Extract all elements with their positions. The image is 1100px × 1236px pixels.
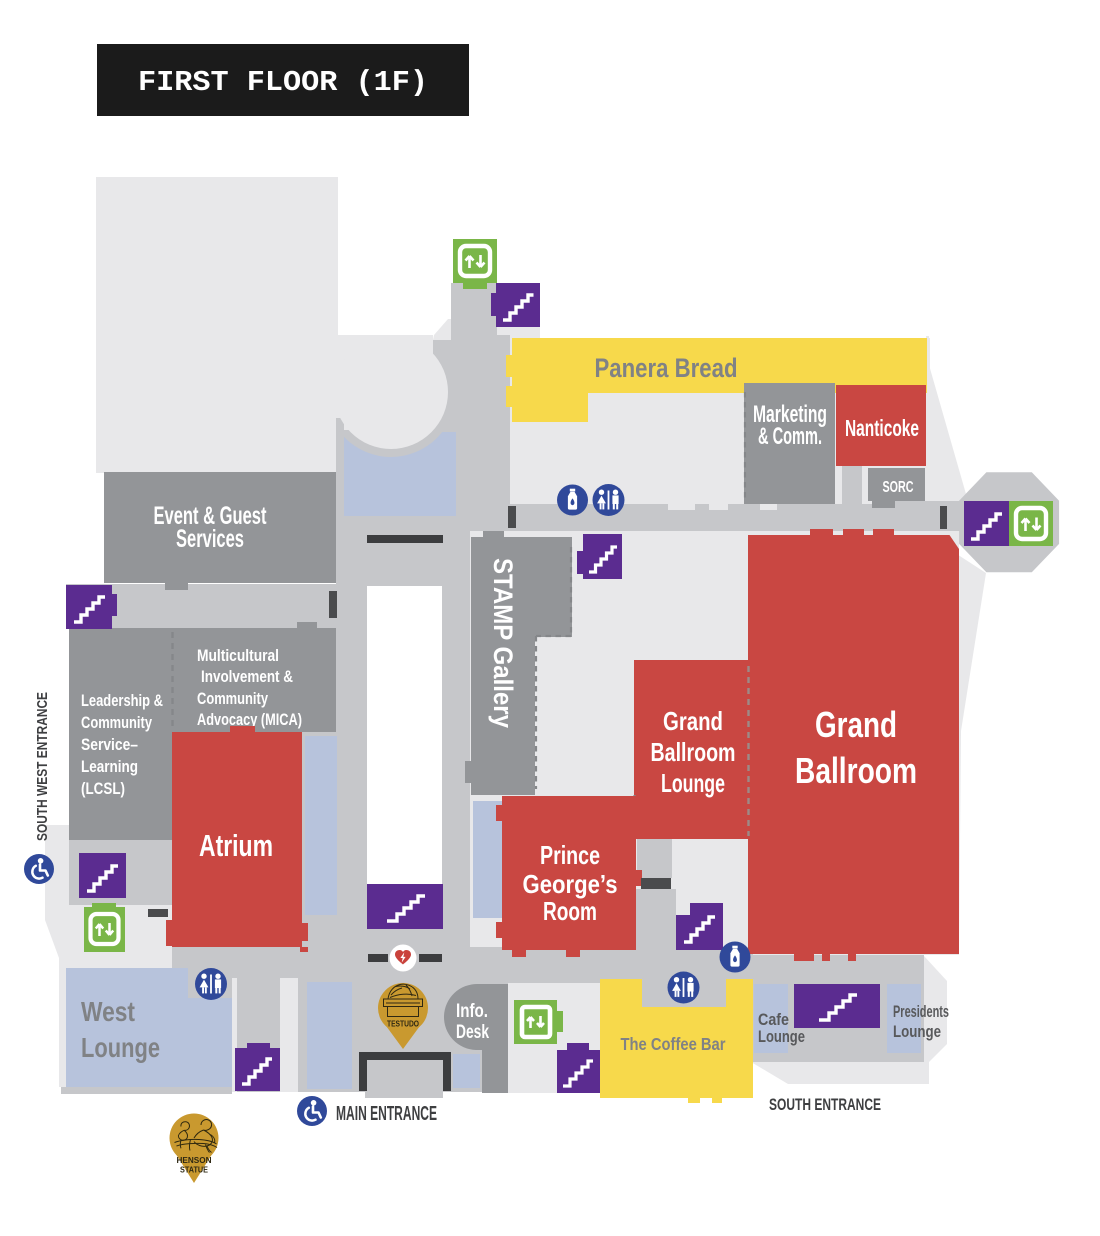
svg-text:Atrium: Atrium [199, 828, 273, 863]
svg-text:STAMP Gallery: STAMP Gallery [488, 558, 518, 728]
svg-text:Lounge: Lounge [758, 1028, 805, 1046]
svg-text:Ballroom: Ballroom [795, 750, 917, 791]
svg-text:Multicultural: Multicultural [197, 647, 279, 665]
svg-text:Community: Community [81, 714, 153, 732]
svg-text:Info.: Info. [456, 1001, 488, 1022]
svg-text:Grand: Grand [815, 704, 897, 745]
svg-text:Grand: Grand [663, 706, 723, 736]
svg-text:STATUE: STATUE [180, 1166, 209, 1175]
svg-text:(LCSL): (LCSL) [81, 780, 125, 798]
svg-text:Leadership &: Leadership & [81, 692, 163, 710]
svg-text:FIRST FLOOR (1F): FIRST FLOOR (1F) [138, 66, 428, 99]
svg-text:MAIN ENTRANCE: MAIN ENTRANCE [336, 1103, 437, 1125]
svg-text:SORC: SORC [883, 479, 914, 496]
svg-text:Learning: Learning [81, 758, 138, 776]
svg-text:Community: Community [197, 690, 269, 708]
svg-text:Room: Room [543, 896, 597, 926]
svg-text:Desk: Desk [456, 1022, 489, 1043]
svg-text:& Comm.: & Comm. [758, 423, 822, 450]
svg-text:Lounge: Lounge [81, 1032, 160, 1063]
svg-text:West: West [81, 996, 135, 1027]
svg-text:SOUTH ENTRANCE: SOUTH ENTRANCE [769, 1096, 881, 1114]
svg-text:Involvement &: Involvement & [201, 668, 293, 686]
svg-text:Lounge: Lounge [661, 768, 725, 798]
svg-text:George’s: George’s [523, 869, 618, 899]
svg-text:Service–: Service– [81, 736, 138, 754]
svg-text:HENSON: HENSON [177, 1156, 212, 1165]
svg-text:Services: Services [176, 525, 244, 553]
svg-text:SOUTH WEST ENTRANCE: SOUTH WEST ENTRANCE [34, 692, 51, 841]
svg-text:Prince: Prince [540, 840, 600, 870]
svg-text:Ballroom: Ballroom [651, 737, 736, 767]
svg-text:TESTUDO: TESTUDO [387, 1019, 419, 1029]
svg-text:Lounge: Lounge [893, 1023, 941, 1041]
svg-text:The Coffee Bar: The Coffee Bar [621, 1034, 726, 1054]
svg-text:Presidents: Presidents [893, 1003, 949, 1021]
svg-text:Cafe: Cafe [758, 1011, 789, 1029]
svg-text:Nanticoke: Nanticoke [845, 415, 919, 441]
svg-text:Panera Bread: Panera Bread [595, 353, 738, 383]
